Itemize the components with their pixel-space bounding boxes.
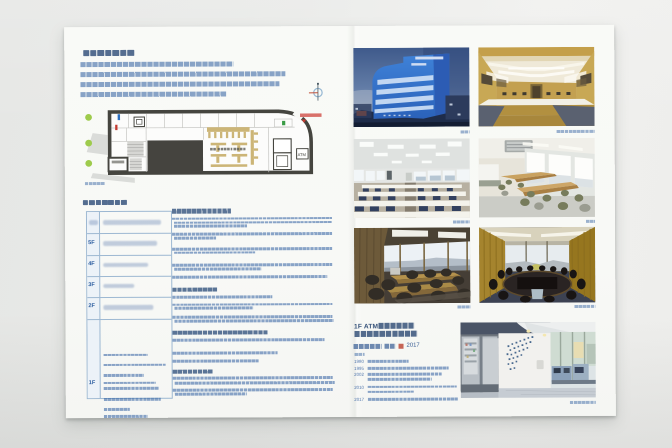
svg-text:ATM: ATM [297,151,306,156]
